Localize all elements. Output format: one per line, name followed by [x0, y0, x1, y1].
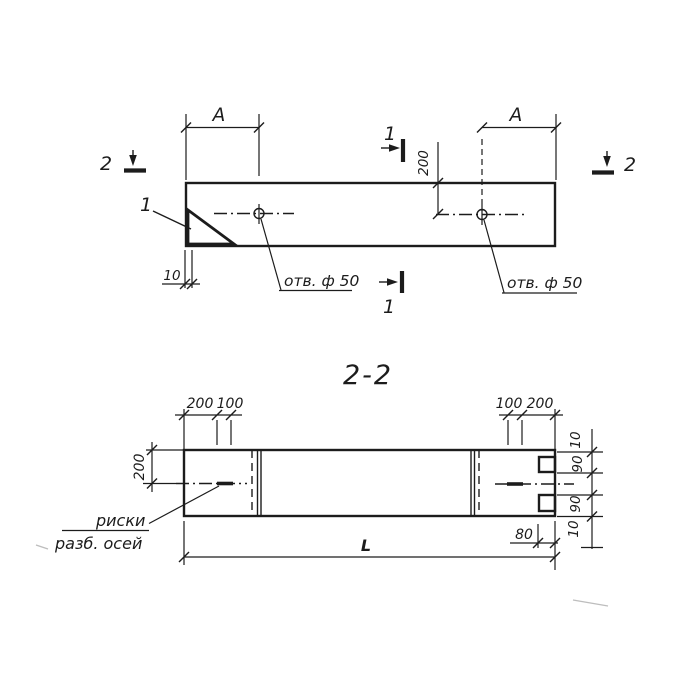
- dims-top-left: 200 100: [175, 396, 243, 450]
- dim-length-l: L: [179, 521, 560, 570]
- section-title: 2-2: [343, 360, 393, 391]
- technical-drawing: 1 A A: [0, 0, 700, 700]
- dim-a-right-value: A: [509, 105, 523, 126]
- dim-tl-100: 100: [217, 396, 244, 412]
- dim-a-left: A: [181, 105, 264, 180]
- dim-right-10-top: 10: [568, 431, 584, 448]
- dim-right-90-top: 90: [570, 455, 586, 472]
- cut-mark-1-top: 1: [381, 123, 403, 162]
- dim-right-90-bottom: 90: [568, 495, 584, 512]
- end-groove-top: [539, 457, 555, 472]
- cut-2-right-label: 2: [624, 154, 636, 176]
- section-view-2-2: 2-2 риски разб. осей: [54, 360, 603, 570]
- center-axis: [176, 484, 574, 485]
- drawing-sheet: 1 A A: [0, 0, 700, 700]
- hole-left-text: отв. ф 50: [284, 272, 360, 290]
- plan-view: 1 A A: [100, 105, 636, 318]
- dim-right-10-bottom: 10: [566, 520, 582, 537]
- cut-mark-1-bottom: 1: [379, 271, 402, 318]
- dim-height-left: 200: [132, 442, 184, 492]
- corner-detail-triangle: [188, 210, 234, 244]
- hole-label-right: отв. ф 50: [484, 220, 583, 293]
- hole-left: [214, 204, 294, 224]
- dim-end-10-value: 10: [163, 268, 180, 284]
- dims-right-chain: 10 90 90 10: [557, 429, 603, 549]
- dim-hole-offset-200: 200: [416, 142, 443, 219]
- detail-callout-1: 1: [140, 194, 191, 229]
- dim-end-10: 10: [162, 250, 200, 289]
- dim-80-value: 80: [515, 527, 533, 543]
- scan-artifacts: [36, 545, 608, 606]
- inner-lines-right: [471, 450, 479, 516]
- dim-height-200: 200: [132, 454, 148, 481]
- dim-length-value: L: [361, 536, 371, 555]
- axis-marks-callout: риски разб. осей: [54, 486, 219, 553]
- cut-1-top-label: 1: [384, 123, 396, 145]
- axis-note-line1: риски: [95, 511, 145, 530]
- detail-mark-label: 1: [140, 194, 152, 216]
- dim-a-left-value: A: [212, 105, 226, 126]
- hole-right: [436, 205, 526, 225]
- cut-mark-2-left: 2: [100, 150, 146, 175]
- dim-80: 80: [510, 524, 560, 548]
- hole-label-left: отв. ф 50: [261, 219, 360, 291]
- cut-2-left-label: 2: [100, 153, 112, 175]
- dim-tr-200: 200: [527, 396, 554, 412]
- end-groove-bottom: [539, 495, 555, 511]
- cut-mark-2-right: 2: [592, 151, 636, 176]
- dim-a-right: A: [477, 105, 561, 211]
- dim-tr-100: 100: [496, 396, 523, 412]
- inner-lines-left: [252, 450, 261, 516]
- cut-1-bottom-label: 1: [383, 296, 395, 318]
- axis-note-line2: разб. осей: [54, 534, 142, 553]
- dim-hole-offset-value: 200: [416, 150, 432, 176]
- dim-tl-200: 200: [187, 396, 214, 412]
- dims-top-right: 100 200: [496, 396, 563, 450]
- hole-right-text: отв. ф 50: [507, 274, 583, 292]
